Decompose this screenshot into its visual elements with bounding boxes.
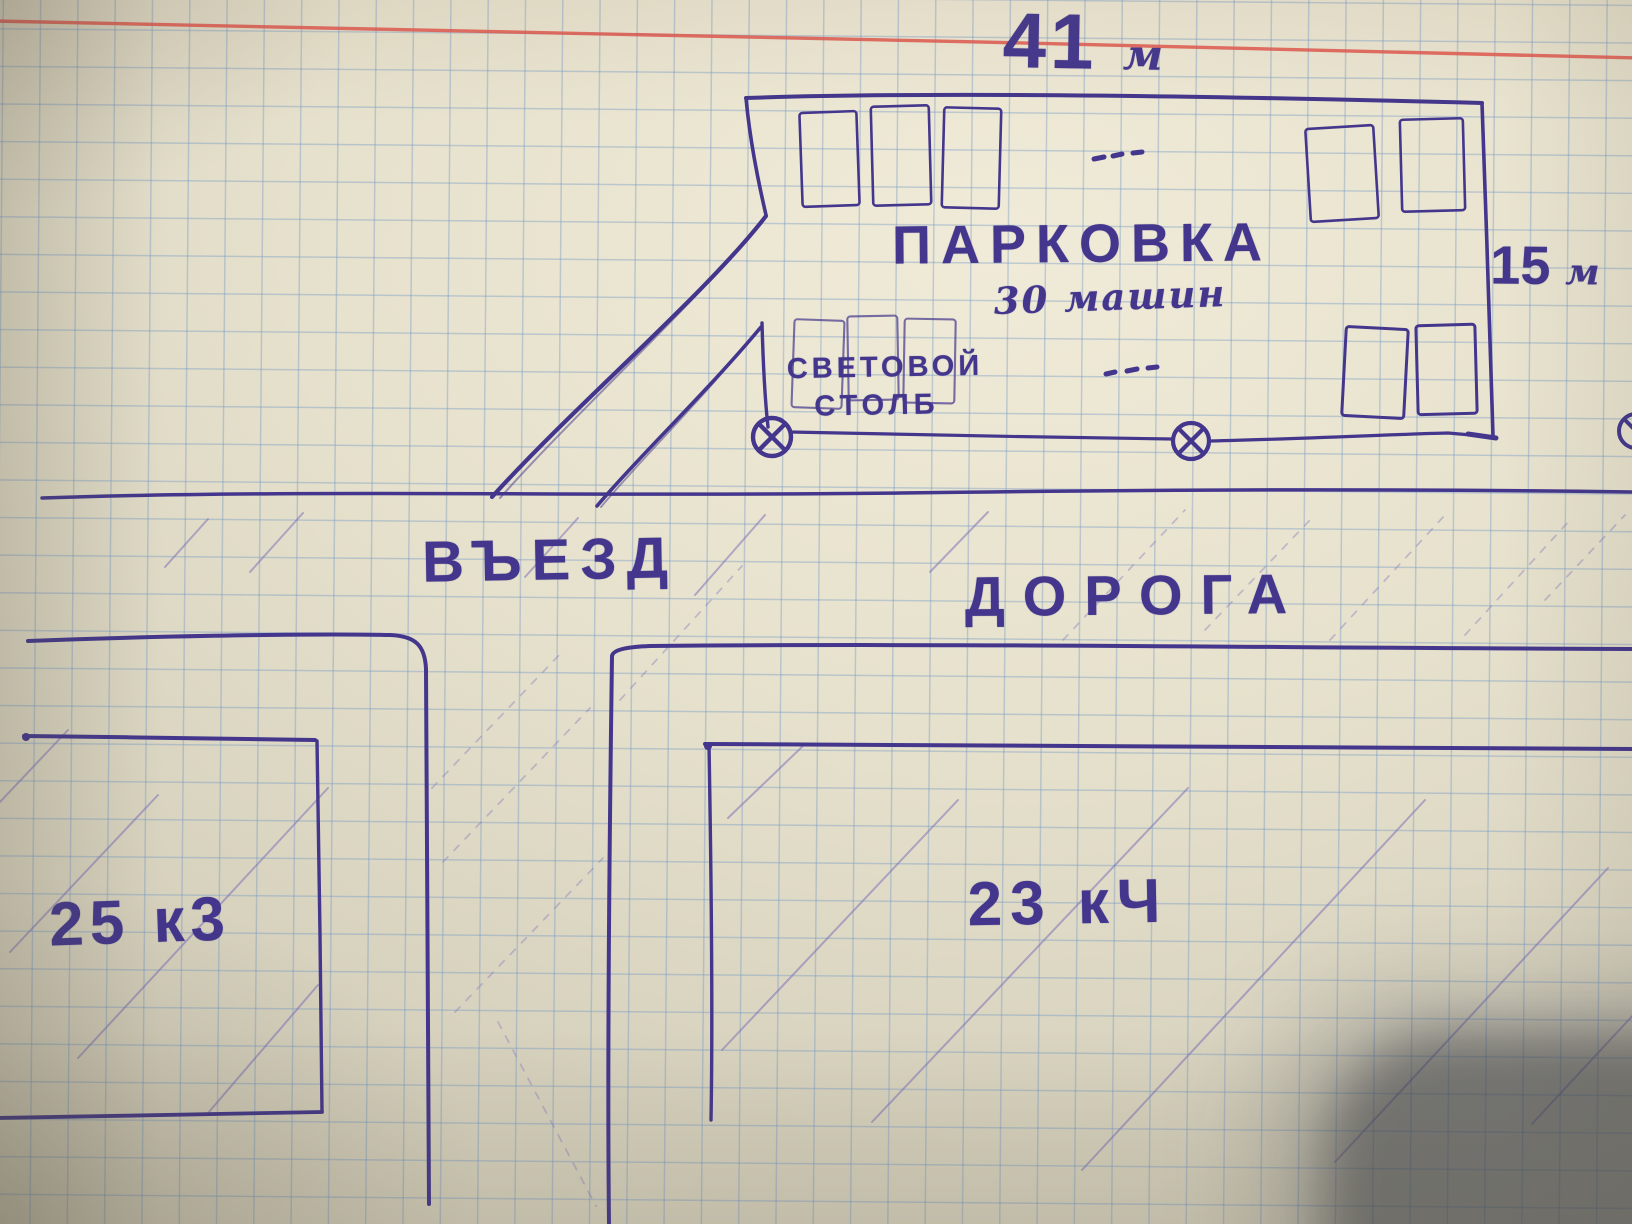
building-right-label: 23 кЧ — [967, 866, 1169, 940]
dimension-right-value: 15 — [1490, 236, 1551, 297]
entrance-curve-outer — [492, 216, 766, 498]
dimension-top-unit: м — [1123, 30, 1168, 80]
parking-space — [942, 107, 1002, 208]
dimension-right-label: 15 м — [1490, 235, 1600, 298]
parking-space — [1342, 326, 1409, 418]
dimension-right-unit: м — [1565, 251, 1600, 293]
parking-title: ПАРКОВКА — [892, 211, 1272, 276]
entrance-curve-inner — [597, 327, 761, 507]
light-pole-icon — [1173, 423, 1209, 459]
road-label: ДОРОГА — [965, 561, 1306, 629]
parking-space — [1305, 125, 1379, 222]
parking-space — [799, 111, 859, 207]
parking-space — [871, 105, 932, 205]
light-pole-icon — [753, 418, 791, 456]
parking-space — [1400, 118, 1465, 212]
light-pole-label-line1: СВЕТОВОЙ — [787, 350, 984, 386]
road-top-line — [42, 490, 1632, 498]
dimension-top-label: 41 м — [1002, 0, 1168, 89]
red-margin-line — [0, 21, 1632, 58]
light-pole-label-line2: СТОЛБ — [814, 388, 940, 423]
parking-space — [1416, 324, 1477, 415]
ellipsis-dots-top — [1094, 152, 1142, 159]
entrance-label: ВЪЕЗД — [422, 524, 679, 595]
dimension-top-value: 41 — [1002, 0, 1098, 86]
photo-shadow — [1322, 1032, 1632, 1224]
ellipsis-dots-bottom — [1106, 367, 1157, 374]
parking-capacity: 30 машин — [993, 271, 1227, 323]
building-left-label: 25 к3 — [48, 883, 232, 960]
light-pole-icon — [1619, 414, 1632, 448]
parking-spaces-bottom-right — [1342, 324, 1477, 418]
notebook-photo: 41 м 15 м ПАРКОВКА 30 машин СВЕТОВОЙ СТО… — [0, 0, 1632, 1224]
parking-spaces-top — [799, 105, 1465, 222]
